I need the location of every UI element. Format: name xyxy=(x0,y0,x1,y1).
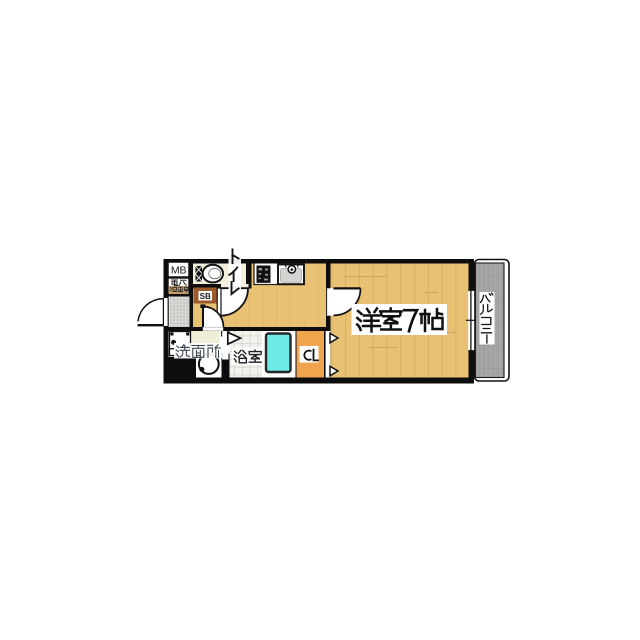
svg-text:SB: SB xyxy=(200,292,211,301)
svg-text:MB: MB xyxy=(171,265,187,277)
